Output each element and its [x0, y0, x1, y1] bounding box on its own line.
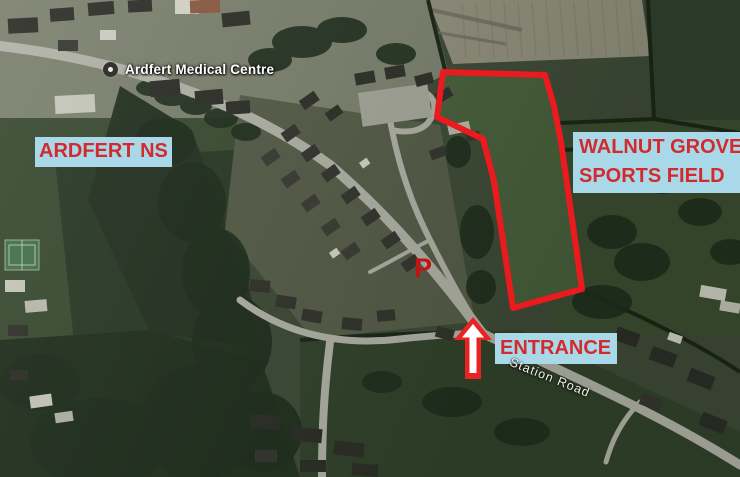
- parking-marker: P: [414, 254, 432, 282]
- label-ardfert-ns: ARDFERT NS: [35, 137, 172, 167]
- annotated-satellite-map: Ardfert Medical Centre ARDFERT NS WALNUT…: [0, 0, 740, 477]
- tennis-courts: [5, 240, 39, 270]
- label-line-1: WALNUT GROVE: [579, 133, 740, 162]
- place-label-medical-centre[interactable]: Ardfert Medical Centre: [103, 62, 274, 77]
- label-walnut-grove-sports-field: WALNUT GROVE SPORTS FIELD: [573, 132, 740, 193]
- map-pin-icon: [103, 62, 118, 77]
- entrance-arrow-icon: [453, 317, 493, 379]
- label-line-2: SPORTS FIELD: [579, 162, 740, 191]
- place-label-text: Ardfert Medical Centre: [125, 62, 274, 77]
